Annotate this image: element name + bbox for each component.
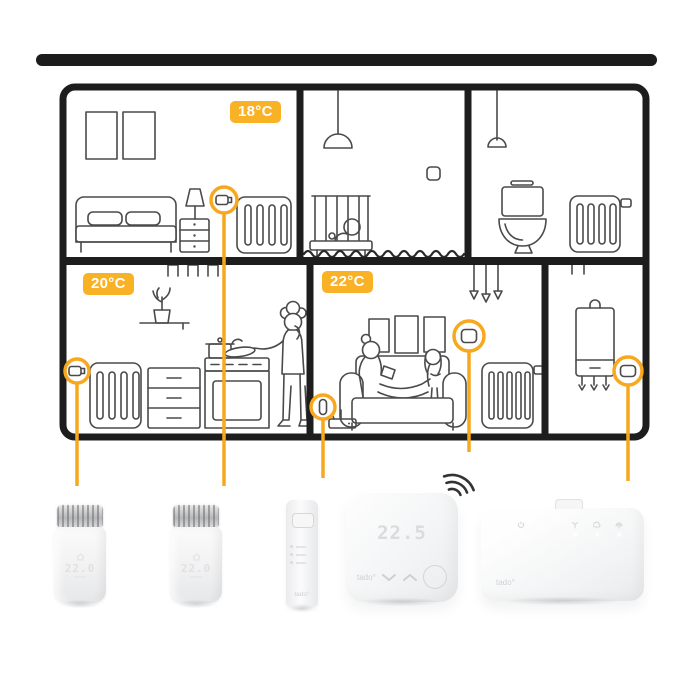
ceiling-lamp-icon [188, 265, 198, 276]
wireless-temperature-sensor: tado° [286, 500, 318, 608]
wall-switch-icon [427, 167, 440, 180]
radiator-valve-icon [216, 196, 228, 205]
power-button-outline [423, 565, 447, 589]
boiler-icon [576, 300, 614, 390]
radiator-icon [482, 363, 543, 428]
shadow [286, 602, 318, 614]
picture-frame-icon [123, 112, 155, 159]
woman-reading-icon [359, 335, 430, 399]
sofa-icon [340, 356, 466, 427]
roof-bar [36, 54, 657, 66]
shadow [170, 598, 222, 610]
pendant-lamp-icon [470, 263, 502, 302]
girl-icon [425, 350, 441, 403]
radio-led-icon [571, 521, 579, 536]
pendant-lamp-icon [324, 91, 352, 148]
mounting-tab [555, 499, 583, 509]
bed-icon [76, 197, 176, 252]
ceiling-lamp-icon [572, 264, 584, 274]
rug-wave-icon [304, 251, 464, 257]
radiator-icon [237, 197, 291, 253]
radiator-icon [570, 196, 631, 252]
boiler-room [572, 264, 614, 390]
stove-icon [205, 338, 269, 428]
router-icon [329, 410, 356, 428]
temperature-badge-kitchen: 20°C [83, 273, 134, 295]
chevron-up-icon [402, 573, 418, 582]
led-indicator [290, 561, 306, 564]
power-led-icon [517, 521, 525, 536]
bathroom [488, 91, 631, 253]
radiator-thermostat-2: 22.0 [170, 504, 222, 604]
chevron-down-icon [381, 573, 397, 582]
frying-pan-icon [225, 345, 256, 358]
picture-frame-icon [86, 112, 117, 159]
sofa-seat [352, 398, 453, 430]
highlight-kitchen-valve [65, 359, 89, 383]
shadow [54, 598, 106, 610]
toilet-icon [499, 181, 546, 253]
trv-display: 22.0 [65, 553, 96, 578]
tado-heating-infographic: 18°C 20°C 22°C 22.0 22.0 [0, 0, 700, 700]
thermostat-dial [173, 504, 219, 527]
drawer-unit-icon [148, 368, 200, 428]
led-indicator [290, 553, 306, 556]
wall-thermostat-icon [462, 330, 477, 343]
picture-frame-icon [424, 317, 445, 352]
thermostat-display: 22.5 [346, 522, 458, 544]
receiver-icon [621, 366, 636, 377]
connector-lines [77, 212, 628, 486]
temperature-sensor-icon [320, 400, 327, 415]
house-frame [63, 87, 646, 437]
nightstand-icon [180, 219, 209, 252]
led-indicator [290, 545, 306, 548]
thermostat-dial [57, 504, 103, 527]
shadow [346, 596, 458, 608]
radiator-icon [90, 363, 141, 428]
ceiling-lamp-icon [168, 265, 178, 276]
highlight-boiler-receiver [614, 357, 642, 385]
cook-person-icon [225, 302, 311, 427]
nursery [304, 91, 464, 257]
book-icon [381, 366, 395, 379]
temperature-badge-bedroom: 18°C [230, 101, 281, 123]
pendant-lamp-icon [488, 91, 506, 147]
radiator-thermostat-1: 22.0 [54, 504, 106, 604]
temperature-badge-living-room: 22°C [322, 271, 373, 293]
picture-frame-icon [395, 316, 418, 353]
lamp-icon [186, 189, 204, 219]
brand-label: tado° [286, 591, 318, 598]
radiator-valve-icon [621, 199, 631, 207]
brand-label: tado° [357, 573, 376, 582]
radiator-valve-icon [534, 366, 543, 374]
highlight-temperature-sensor [311, 395, 335, 419]
link-led-icon [615, 521, 623, 536]
pairing-button [292, 513, 314, 528]
highlight-wall-thermostat [454, 321, 484, 351]
baby-icon [329, 219, 360, 240]
radiator-valve-icon [69, 367, 81, 376]
house-icon [76, 553, 85, 561]
house-icon [192, 553, 201, 561]
picture-frame-icon [369, 319, 389, 352]
smart-thermostat: 22.5 tado° [346, 492, 458, 602]
crib-icon [310, 196, 372, 256]
highlight-bedroom-valve [211, 187, 237, 213]
ceiling-lamp-icon [208, 265, 218, 276]
highlighted-devices [65, 187, 642, 419]
wireless-receiver: tado° [481, 507, 644, 601]
plant-icon [140, 288, 189, 329]
brand-label: tado° [496, 578, 515, 587]
shadow [481, 595, 644, 607]
bedroom [76, 112, 291, 253]
trv-display: 22.0 [181, 553, 212, 578]
cloud-led-icon [593, 521, 601, 536]
